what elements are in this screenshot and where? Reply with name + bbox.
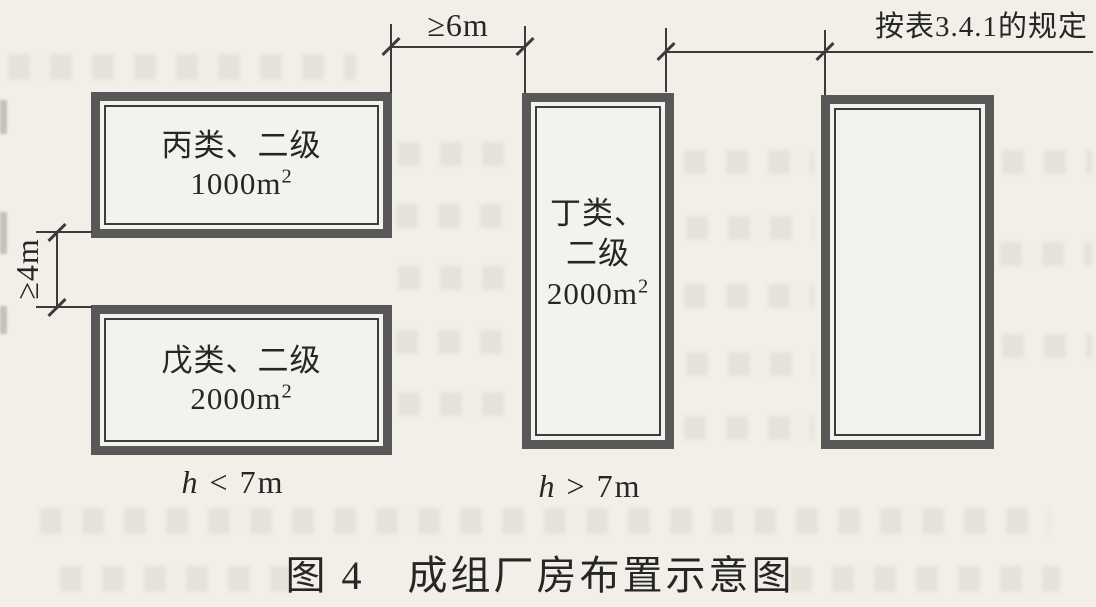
building-top-left-label: 丙类、二级 1000m2 (100, 101, 383, 229)
scan-ghost-text (684, 284, 814, 308)
building-right-inner-outline (834, 108, 981, 436)
building-bottom-left: 戊类、二级 2000m2 (91, 305, 392, 455)
extension-line (665, 28, 667, 92)
height-label-middle-building: h > 7m (480, 468, 700, 504)
scan-ghost-text (398, 392, 516, 416)
scan-ghost-text (396, 204, 516, 228)
extension-line (36, 231, 92, 233)
dimension-line (56, 231, 58, 308)
scan-ghost-text (1002, 150, 1092, 174)
scan-ghost-text (8, 54, 356, 80)
scan-edge-mark (0, 100, 7, 134)
building-top-left-area: 1000m2 (190, 165, 292, 203)
building-bottom-left-label: 戊类、二级 2000m2 (100, 314, 383, 446)
scan-ghost-text (1000, 242, 1092, 266)
building-bottom-left-category: 戊类、二级 (162, 342, 322, 380)
building-top-left-category: 丙类、二级 (162, 127, 322, 165)
scan-edge-mark (0, 306, 7, 334)
height-label-left-group: h < 7m (103, 464, 363, 500)
building-bottom-left-area: 2000m2 (190, 380, 292, 418)
building-right-unlabeled (821, 95, 994, 449)
area-exponent: 2 (281, 166, 292, 188)
building-middle-category-line1: 丁类、 (550, 194, 646, 234)
scan-ghost-text (684, 416, 814, 440)
scan-ghost-text (1002, 334, 1092, 358)
dimension-line (666, 51, 1093, 53)
building-top-left: 丙类、二级 1000m2 (91, 92, 392, 238)
height-variable: h (539, 468, 557, 504)
scan-ghost-text (686, 216, 814, 240)
area-exponent: 2 (638, 276, 649, 298)
dimension-right-rule-label: 按表3.4.1的规定 (826, 10, 1088, 44)
scan-ghost-text (396, 330, 516, 354)
dimension-left-gap-label: ≥4m (10, 238, 44, 299)
building-middle-category-line2: 二级 (566, 234, 630, 274)
scan-ghost-text (398, 142, 516, 166)
height-relation: > 7m (557, 468, 642, 504)
building-middle-area: 2000m2 (547, 274, 649, 314)
scan-ghost-text (40, 508, 1050, 534)
figure-caption: 图 4 成组厂房布置示意图 (0, 552, 1080, 600)
scan-ghost-text (398, 266, 516, 290)
extension-line (36, 306, 92, 308)
grouped-factory-layout-diagram: 丙类、二级 1000m2 戊类、二级 2000m2 丁类、 二级 2000m2 … (0, 0, 1096, 607)
building-middle: 丁类、 二级 2000m2 (522, 93, 674, 449)
building-middle-label: 丁类、 二级 2000m2 (531, 102, 665, 440)
area-exponent: 2 (281, 381, 292, 403)
scan-ghost-text (686, 352, 814, 376)
scan-edge-mark (0, 212, 7, 254)
height-variable: h (182, 464, 200, 500)
dimension-top-gap-label: ≥6m (391, 8, 525, 42)
dimension-line (391, 46, 525, 48)
scan-ghost-text (684, 150, 814, 174)
height-relation: < 7m (200, 464, 285, 500)
